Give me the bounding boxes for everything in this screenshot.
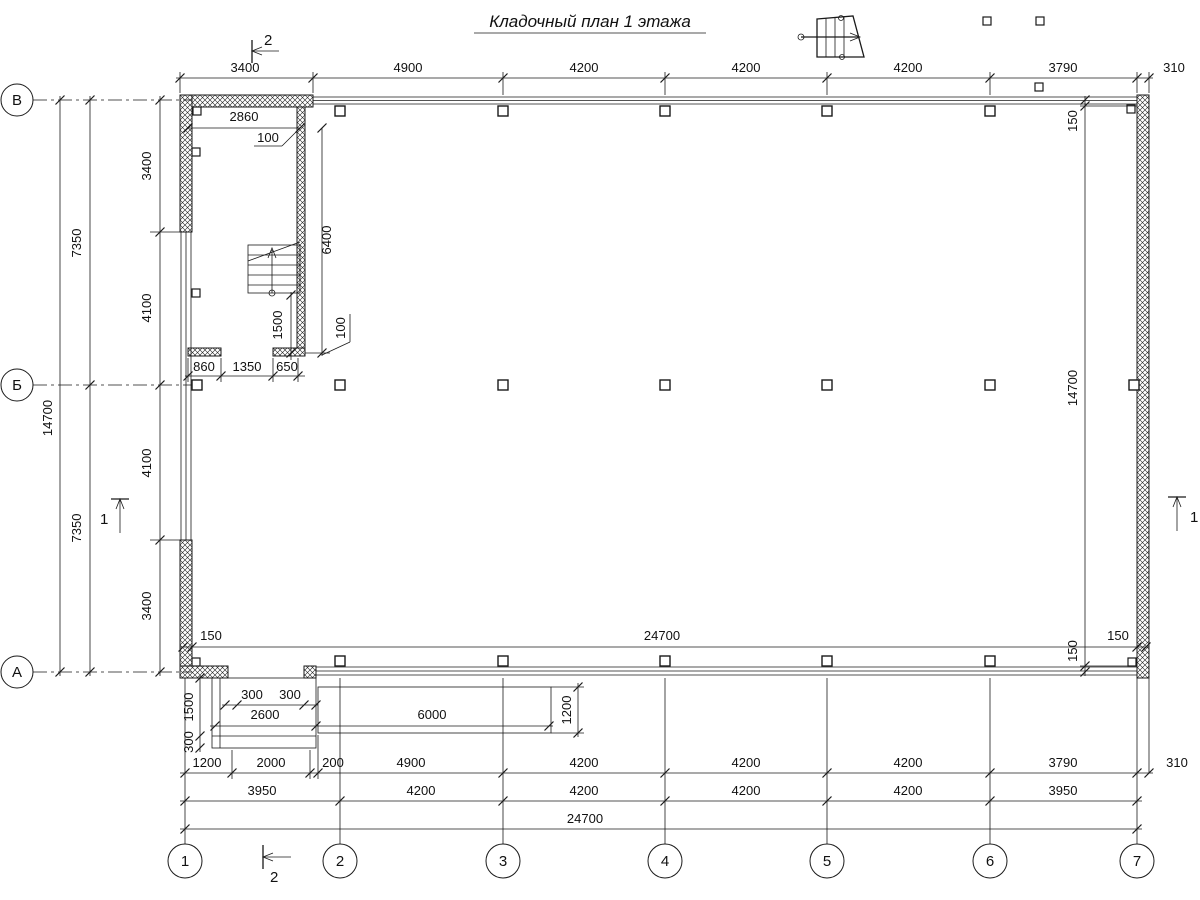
dim-top-4: 4200	[732, 60, 761, 75]
dim-left-total: 14700	[40, 400, 55, 436]
dim-porch-300b: 300	[279, 687, 301, 702]
section-2-label: 2	[264, 32, 272, 49]
dim-inner-150-right: 150	[1107, 628, 1129, 643]
axis-label-v: В	[12, 92, 22, 109]
dim-left-half-1: 7350	[69, 229, 84, 258]
dim-stair-650: 650	[276, 359, 298, 374]
porch-ramp: 1500 300 300 300 2600 6000 1200	[181, 674, 584, 753]
dim-b2-4200a: 4200	[407, 783, 436, 798]
axis-label-7: 7	[1133, 853, 1141, 870]
dim-right-total: 14700	[1065, 370, 1080, 406]
dim-top-6: 3790	[1049, 60, 1078, 75]
axis-label-2: 2	[336, 853, 344, 870]
dim-porch-1500: 1500	[181, 693, 196, 722]
dim-ramp-1200: 1200	[559, 696, 574, 725]
axis-grid	[33, 100, 192, 672]
dim-b1-4200b: 4200	[732, 755, 761, 770]
section-marker-left: 1	[100, 499, 129, 533]
dim-left-inner-4: 3400	[139, 592, 154, 621]
dim-b1-4900: 4900	[397, 755, 426, 770]
stair-section-icon	[798, 16, 864, 60]
dim-row-bottom-3: 24700	[180, 811, 1142, 834]
section-2-label: 2	[270, 869, 278, 886]
dim-b2-4200c: 4200	[732, 783, 761, 798]
dim-inner-150-left: 150	[200, 628, 222, 643]
axis-label-a: А	[12, 664, 22, 681]
dim-b1-200: 200	[322, 755, 344, 770]
glazing-left	[181, 232, 191, 540]
dim-top-7: 310	[1163, 60, 1185, 75]
section-1-label: 1	[1190, 509, 1198, 526]
dim-inner-24700: 24700	[644, 628, 680, 643]
wall-bottom-pier	[304, 666, 316, 678]
section-marker-top: 2	[252, 32, 279, 63]
stairwell-wall	[297, 107, 305, 356]
axis-label-3: 3	[499, 853, 507, 870]
dim-porch-300v: 300	[181, 731, 196, 753]
wall-left-upper	[180, 95, 192, 232]
col-axis-bubbles: 1 2 3 4 5 6 7	[168, 844, 1154, 878]
dim-b2-4200d: 4200	[894, 783, 923, 798]
columns	[192, 17, 1139, 666]
dim-row-inner: 150 24700 150	[179, 628, 1151, 652]
dim-right-150-bottom: 150	[1065, 640, 1080, 662]
masonry-plan-svg: Кладочный план 1 этажа	[0, 0, 1200, 900]
staircase	[248, 242, 300, 296]
section-1-label: 1	[100, 511, 108, 528]
dim-ramp-6000: 6000	[418, 707, 447, 722]
drawing-title: Кладочный план 1 этажа	[474, 12, 706, 33]
dim-b1-1200: 1200	[193, 755, 222, 770]
dim-left-inner-1: 3400	[139, 152, 154, 181]
glazing-top	[313, 97, 1137, 104]
dim-porch-2600: 2600	[251, 707, 280, 722]
dim-stair-stub: 100	[333, 317, 348, 339]
dim-top-5: 4200	[894, 60, 923, 75]
dim-top-2: 4900	[394, 60, 423, 75]
dim-left-inner-3: 4100	[139, 449, 154, 478]
axis-label-4: 4	[661, 853, 669, 870]
dim-b1-3790: 3790	[1049, 755, 1078, 770]
section-marker-bottom: 2	[263, 845, 291, 886]
dim-row-top: 3400 4900 4200 4200 4200 3790 310	[176, 60, 1185, 95]
dims-stairwell: 2860 100 6400 1500 100 860 1350 650	[184, 109, 351, 382]
dim-left-half-2: 7350	[69, 514, 84, 543]
stairwell-stub-left	[188, 348, 221, 356]
axis-label-5: 5	[823, 853, 831, 870]
dim-stair-depth: 6400	[319, 226, 334, 255]
wall-top-left	[180, 95, 313, 107]
dim-porch-300a: 300	[241, 687, 263, 702]
dim-top-1: 3400	[231, 60, 260, 75]
dim-row-bottom-2: 3950 4200 4200 4200 4200 3950	[180, 783, 1142, 806]
row-axis-bubbles: В Б А	[1, 84, 33, 688]
axis-label-1: 1	[181, 853, 189, 870]
dim-b2-3950a: 3950	[248, 783, 277, 798]
wall-left-lower	[180, 540, 192, 678]
dim-b1-4200c: 4200	[894, 755, 923, 770]
dim-row-bottom-1: 1200 2000 200 4900 4200 4200 4200 3790 3…	[180, 735, 1188, 779]
dim-b3-24700: 24700	[567, 811, 603, 826]
dim-b2-3950b: 3950	[1049, 783, 1078, 798]
dim-right-150-top: 150	[1065, 110, 1080, 132]
dim-top-3: 4200	[570, 60, 599, 75]
dim-b1-4200a: 4200	[570, 755, 599, 770]
dim-left-inner-2: 4100	[139, 294, 154, 323]
dim-b1-310: 310	[1166, 755, 1188, 770]
dim-stair-1350: 1350	[233, 359, 262, 374]
dim-stair-landing: 1500	[270, 311, 285, 340]
dim-col-right: 150 14700 150	[1065, 96, 1137, 677]
dim-stair-width: 2860	[230, 109, 259, 124]
axis-label-b: Б	[12, 377, 22, 394]
dim-stair-wall: 100	[257, 130, 279, 145]
drawing-sheet: Кладочный план 1 этажа	[0, 0, 1200, 900]
glazing-bottom	[316, 667, 1137, 675]
dim-col-left: 14700 7350 7350 3400 4100 4100 3400	[40, 96, 192, 677]
axis-label-6: 6	[986, 853, 994, 870]
page-title: Кладочный план 1 этажа	[489, 12, 691, 31]
dim-stair-860: 860	[193, 359, 215, 374]
dim-b1-2000: 2000	[257, 755, 286, 770]
dim-b2-4200b: 4200	[570, 783, 599, 798]
section-marker-right: 1	[1168, 497, 1198, 531]
